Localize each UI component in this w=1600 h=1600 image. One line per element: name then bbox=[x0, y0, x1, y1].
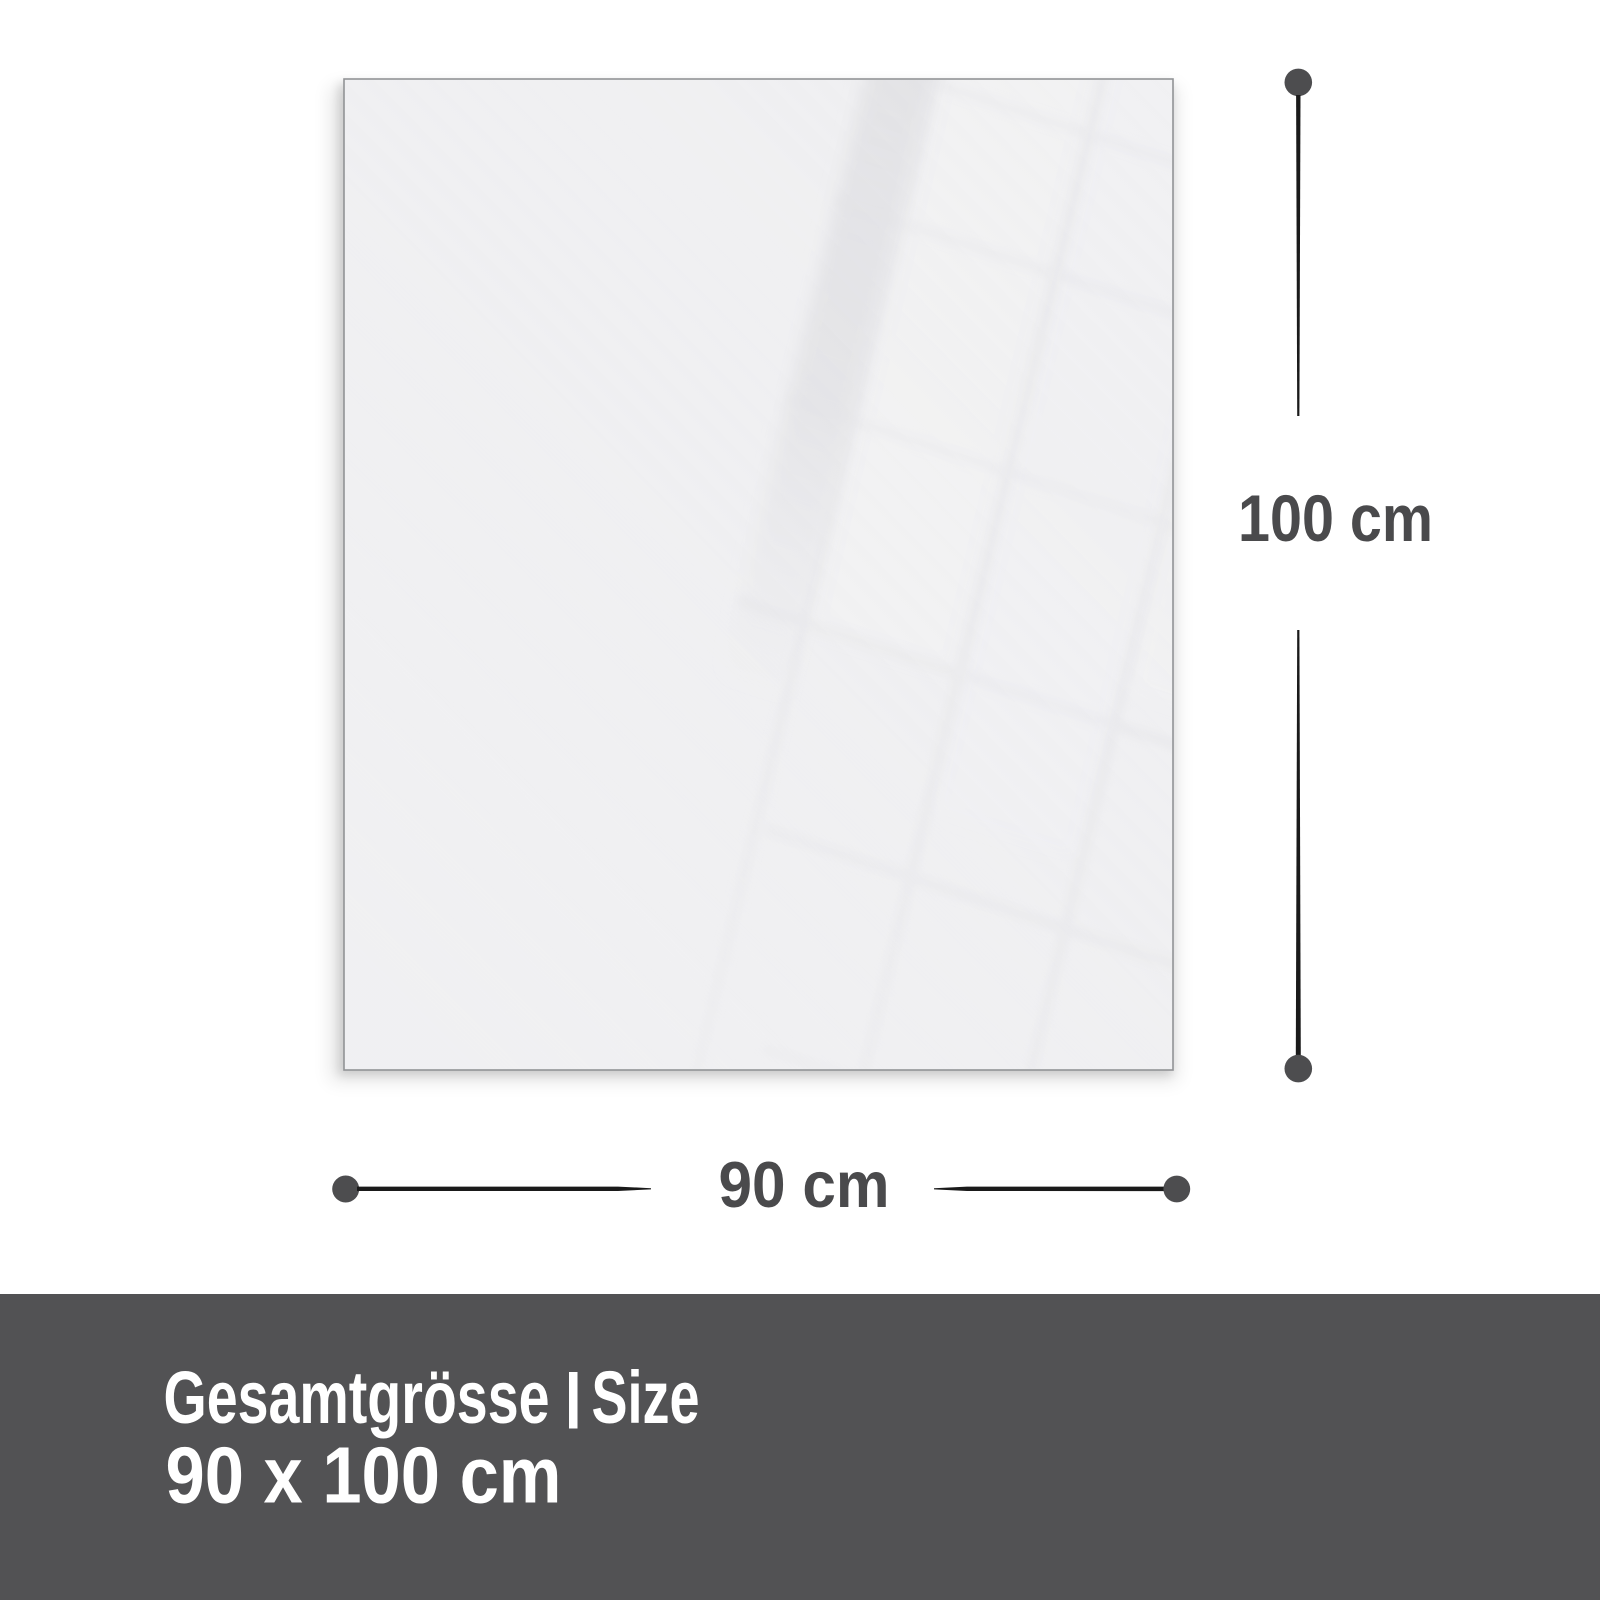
svg-text:100 cm: 100 cm bbox=[1238, 481, 1433, 555]
svg-text:90 cm: 90 cm bbox=[719, 1148, 890, 1221]
svg-text:Size: Size bbox=[592, 1356, 700, 1439]
svg-text:90 x 100 cm: 90 x 100 cm bbox=[166, 1431, 562, 1520]
svg-text:Gesamtgrösse: Gesamtgrösse bbox=[164, 1356, 550, 1439]
